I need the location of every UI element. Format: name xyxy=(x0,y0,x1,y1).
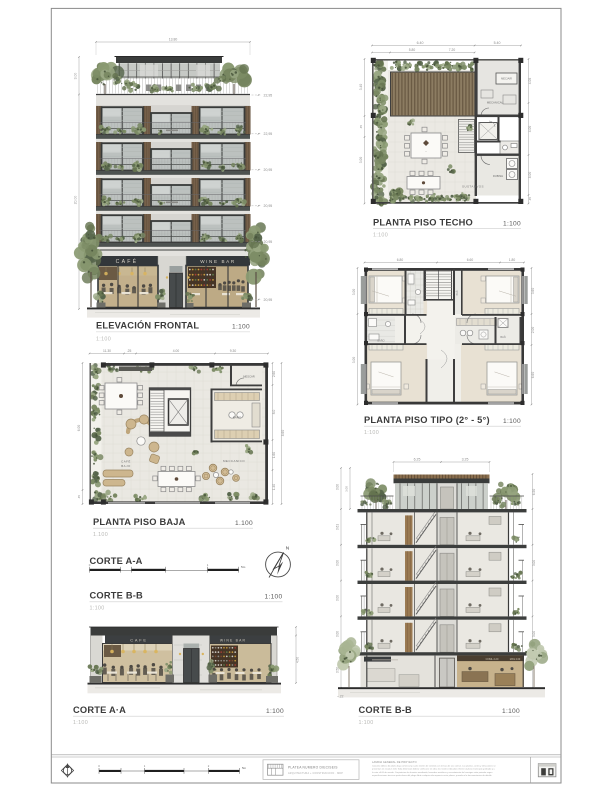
svg-text:CORTE A·A: CORTE A·A xyxy=(73,705,126,715)
svg-text:1:100: 1:100 xyxy=(503,418,521,425)
svg-text:MECANICAL: MECANICAL xyxy=(487,101,504,105)
svg-text:8.00: 8.00 xyxy=(528,172,532,179)
svg-text:5.80: 5.80 xyxy=(409,48,416,52)
svg-text:PLATEA NUMERO DIECISEIS: PLATEA NUMERO DIECISEIS xyxy=(288,766,338,770)
svg-text:COML 2.20: COML 2.20 xyxy=(486,658,499,661)
svg-text:1:100: 1:100 xyxy=(96,337,111,343)
svg-text:MEC/AIR: MEC/AIR xyxy=(501,77,512,81)
svg-text:5m: 5m xyxy=(241,565,246,569)
svg-text:20,95: 20,95 xyxy=(264,298,273,302)
svg-text:2.60: 2.60 xyxy=(272,371,276,377)
svg-text:SUSTANVOS: SUSTANVOS xyxy=(462,185,484,189)
svg-text:CORTE B-B: CORTE B-B xyxy=(359,705,413,715)
svg-text:3.00: 3.00 xyxy=(352,357,356,364)
svg-text:CAFÉ: CAFÉ xyxy=(121,459,131,464)
svg-text:CAFE: CAFE xyxy=(130,637,148,642)
svg-text:1:100: 1:100 xyxy=(264,594,282,601)
svg-text:1:100: 1:100 xyxy=(503,221,521,228)
svg-text:4.50: 4.50 xyxy=(296,657,300,663)
svg-text:6.50: 6.50 xyxy=(532,489,536,496)
svg-text:–.22: –.22 xyxy=(337,695,344,699)
svg-text:LAMINA GENERAL DE PROYECTO: LAMINA GENERAL DE PROYECTO xyxy=(372,760,417,764)
svg-text:20,95: 20,95 xyxy=(264,204,273,208)
svg-text:CAFÉ: CAFÉ xyxy=(116,258,139,265)
svg-text:1:100: 1:100 xyxy=(373,233,388,239)
svg-text:PLANTA PISO BAJA: PLANTA PISO BAJA xyxy=(93,517,186,527)
svg-text:BAJO: BAJO xyxy=(121,464,131,468)
svg-text:MESCAR: MESCAR xyxy=(243,375,255,379)
svg-text:BAÑO: BAÑO xyxy=(233,415,242,420)
svg-text:~: ~ xyxy=(425,149,427,153)
svg-text:1:100: 1:100 xyxy=(90,606,105,612)
svg-text:N: N xyxy=(286,546,290,552)
svg-text:1:100: 1:100 xyxy=(502,708,520,715)
svg-text:13.80: 13.80 xyxy=(169,37,178,41)
svg-text:1:100: 1:100 xyxy=(364,430,379,436)
svg-text:la cota ±0.00 de vereda. Carpi: la cota ±0.00 de vereda. Carpinterias de… xyxy=(372,771,493,774)
svg-text:6.80: 6.80 xyxy=(397,258,404,262)
svg-text:6.60: 6.60 xyxy=(531,372,535,379)
svg-text:3.40: 3.40 xyxy=(359,84,363,91)
svg-text:PLANTA PISO TIPO (2° - 5°): PLANTA PISO TIPO (2° - 5°) xyxy=(364,415,490,425)
svg-text:3.00: 3.00 xyxy=(359,157,363,164)
svg-text:ARQUITECTURA + CONSTRUCCION ·: ARQUITECTURA + CONSTRUCCION · MDP xyxy=(288,772,343,775)
svg-text:ELEVACIÓN FRONTAL: ELEVACIÓN FRONTAL xyxy=(96,320,199,331)
svg-text:22,95: 22,95 xyxy=(264,132,273,136)
svg-text:BAÑ: BAÑ xyxy=(456,290,459,295)
svg-text:3.00: 3.00 xyxy=(532,631,536,637)
svg-text:3.25: 3.25 xyxy=(462,457,469,461)
svg-text:1:100: 1:100 xyxy=(359,720,374,726)
svg-text:7.20: 7.20 xyxy=(449,48,456,52)
svg-text:20,95: 20,95 xyxy=(264,240,273,244)
svg-text:presentan en escala 1:100. Tod: presentan en escala 1:100. Toda dimensio… xyxy=(372,768,495,771)
svg-text:3.00: 3.00 xyxy=(74,73,78,80)
svg-text:MAS 2.00: MAS 2.00 xyxy=(510,658,521,661)
svg-text:WINE BAR: WINE BAR xyxy=(220,638,246,642)
svg-text:6.60: 6.60 xyxy=(467,258,474,262)
svg-text:1.80: 1.80 xyxy=(509,258,516,262)
svg-text:5m: 5m xyxy=(242,766,247,770)
svg-text:9.30: 9.30 xyxy=(230,349,237,353)
svg-text:11.30: 11.30 xyxy=(103,349,111,353)
svg-text:3.00: 3.00 xyxy=(336,631,340,637)
svg-text:.25: .25 xyxy=(127,349,132,353)
svg-text:8.60: 8.60 xyxy=(281,430,285,437)
svg-text:3.00: 3.00 xyxy=(336,484,340,490)
svg-text:3.00: 3.00 xyxy=(336,595,340,601)
svg-text:3.61: 3.61 xyxy=(336,524,340,530)
svg-text:20,95: 20,95 xyxy=(264,168,273,172)
svg-text:RUBISH: RUBISH xyxy=(493,174,503,178)
svg-text:PLANTA PISO TECHO: PLANTA PISO TECHO xyxy=(373,218,473,228)
svg-text:.45: .45 xyxy=(528,197,532,202)
svg-text:CORTE A-A: CORTE A-A xyxy=(90,556,143,566)
svg-text:8.0: 8.0 xyxy=(272,410,276,415)
svg-text:.45: .45 xyxy=(77,495,81,500)
svg-text:.45: .45 xyxy=(359,125,363,130)
svg-text:6.40: 6.40 xyxy=(417,41,424,45)
svg-text:2.00: 2.00 xyxy=(531,327,535,334)
svg-text:20.00: 20.00 xyxy=(74,196,78,205)
svg-text:3.00: 3.00 xyxy=(352,289,356,296)
svg-text:1.60: 1.60 xyxy=(272,452,276,458)
svg-text:22,95: 22,95 xyxy=(264,93,273,97)
svg-text:4.05: 4.05 xyxy=(528,78,532,85)
svg-text:5.40: 5.40 xyxy=(494,41,501,45)
svg-text:especificaciones tecnicas part: especificaciones tecnicas particulares d… xyxy=(372,774,492,777)
svg-text:1.100: 1.100 xyxy=(235,520,253,527)
svg-text:6.25: 6.25 xyxy=(414,457,421,461)
svg-text:6.00: 6.00 xyxy=(77,425,81,432)
svg-text:CORTE B-B: CORTE B-B xyxy=(90,591,144,601)
svg-text:3.00: 3.00 xyxy=(532,560,536,566)
svg-text:3.00: 3.00 xyxy=(345,486,349,492)
svg-text:1.100: 1.100 xyxy=(93,532,108,538)
svg-text:1:100: 1:100 xyxy=(73,720,88,726)
svg-text:Conjunto edilicio de planta ba: Conjunto edilicio de planta baja comerci… xyxy=(372,765,496,768)
svg-text:MECCANICO: MECCANICO xyxy=(223,459,245,463)
svg-text:3.00: 3.00 xyxy=(336,560,340,566)
svg-text:3.60: 3.60 xyxy=(531,288,535,295)
svg-text:1.40: 1.40 xyxy=(272,484,276,490)
svg-text:1:100: 1:100 xyxy=(266,708,284,715)
svg-text:WINE BAR: WINE BAR xyxy=(200,259,236,264)
svg-text:1:100: 1:100 xyxy=(232,324,250,331)
svg-text:4.00: 4.00 xyxy=(173,349,180,353)
svg-text:4.00: 4.00 xyxy=(528,126,532,133)
